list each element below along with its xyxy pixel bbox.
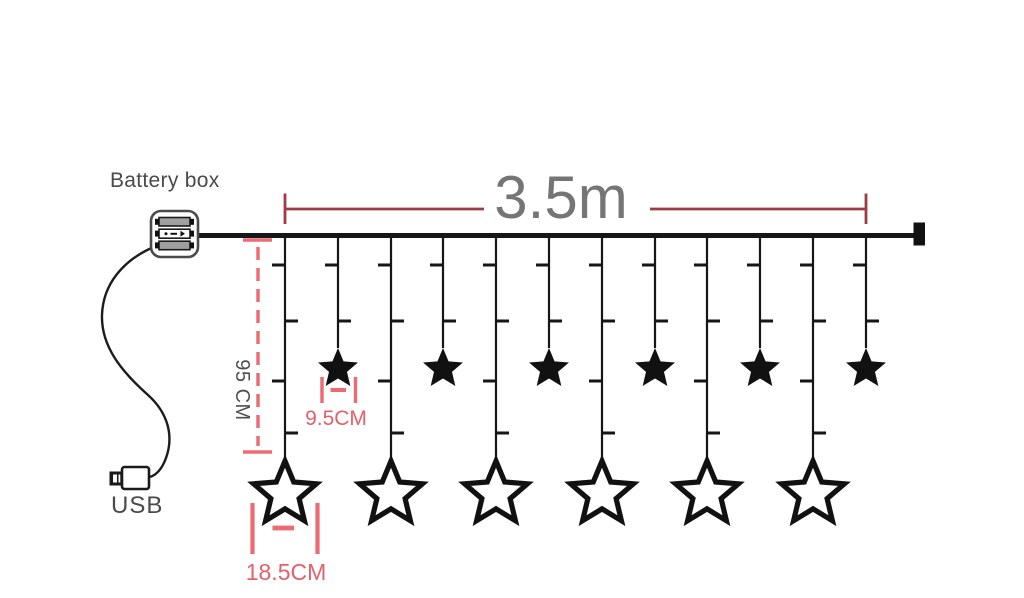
light-string-big-star: [465, 234, 528, 521]
light-string-big-star: [571, 234, 634, 521]
big-star-icon: [676, 461, 739, 521]
big-star-icon: [254, 461, 317, 521]
small-star-icon: [529, 348, 569, 386]
small-star-icon: [635, 348, 675, 386]
drop-length-label: 95 CM: [227, 354, 253, 426]
usb-label: USB: [111, 492, 163, 520]
light-string-small-star: [740, 234, 780, 386]
battery-box-icon: [151, 211, 198, 257]
small-star-icon: [423, 348, 463, 386]
big-star-icon: [360, 461, 423, 521]
light-string-small-star: [423, 234, 463, 386]
light-string-small-star: [635, 234, 675, 386]
big-star-icon: [465, 461, 528, 521]
total-length-label: 3.5m: [461, 163, 661, 232]
big-star-icon: [782, 461, 845, 521]
small-star-icon: [846, 348, 886, 386]
small-star-icon: [318, 348, 358, 386]
light-string-small-star: [529, 234, 569, 386]
light-string-big-star: [254, 234, 317, 521]
light-string-big-star: [360, 234, 423, 521]
star-curtain-diagram: Battery box 3.5m 95 CM 9.5CM 18.5CM USB: [0, 0, 1024, 598]
battery-box-label: Battery box: [110, 169, 220, 193]
usb-plug-icon: [110, 467, 150, 489]
light-string-small-star: [318, 234, 358, 386]
big-star-icon: [571, 461, 634, 521]
light-strings: [254, 234, 886, 521]
light-string-big-star: [782, 234, 845, 521]
small-star-icon: [740, 348, 780, 386]
light-string-big-star: [676, 234, 739, 521]
usb-cable: [102, 246, 169, 477]
light-string-small-star: [846, 234, 886, 386]
big-star-size-label: 18.5CM: [236, 559, 336, 586]
small-star-size-label: 9.5CM: [286, 407, 386, 431]
wire-end-connector: [914, 223, 926, 246]
